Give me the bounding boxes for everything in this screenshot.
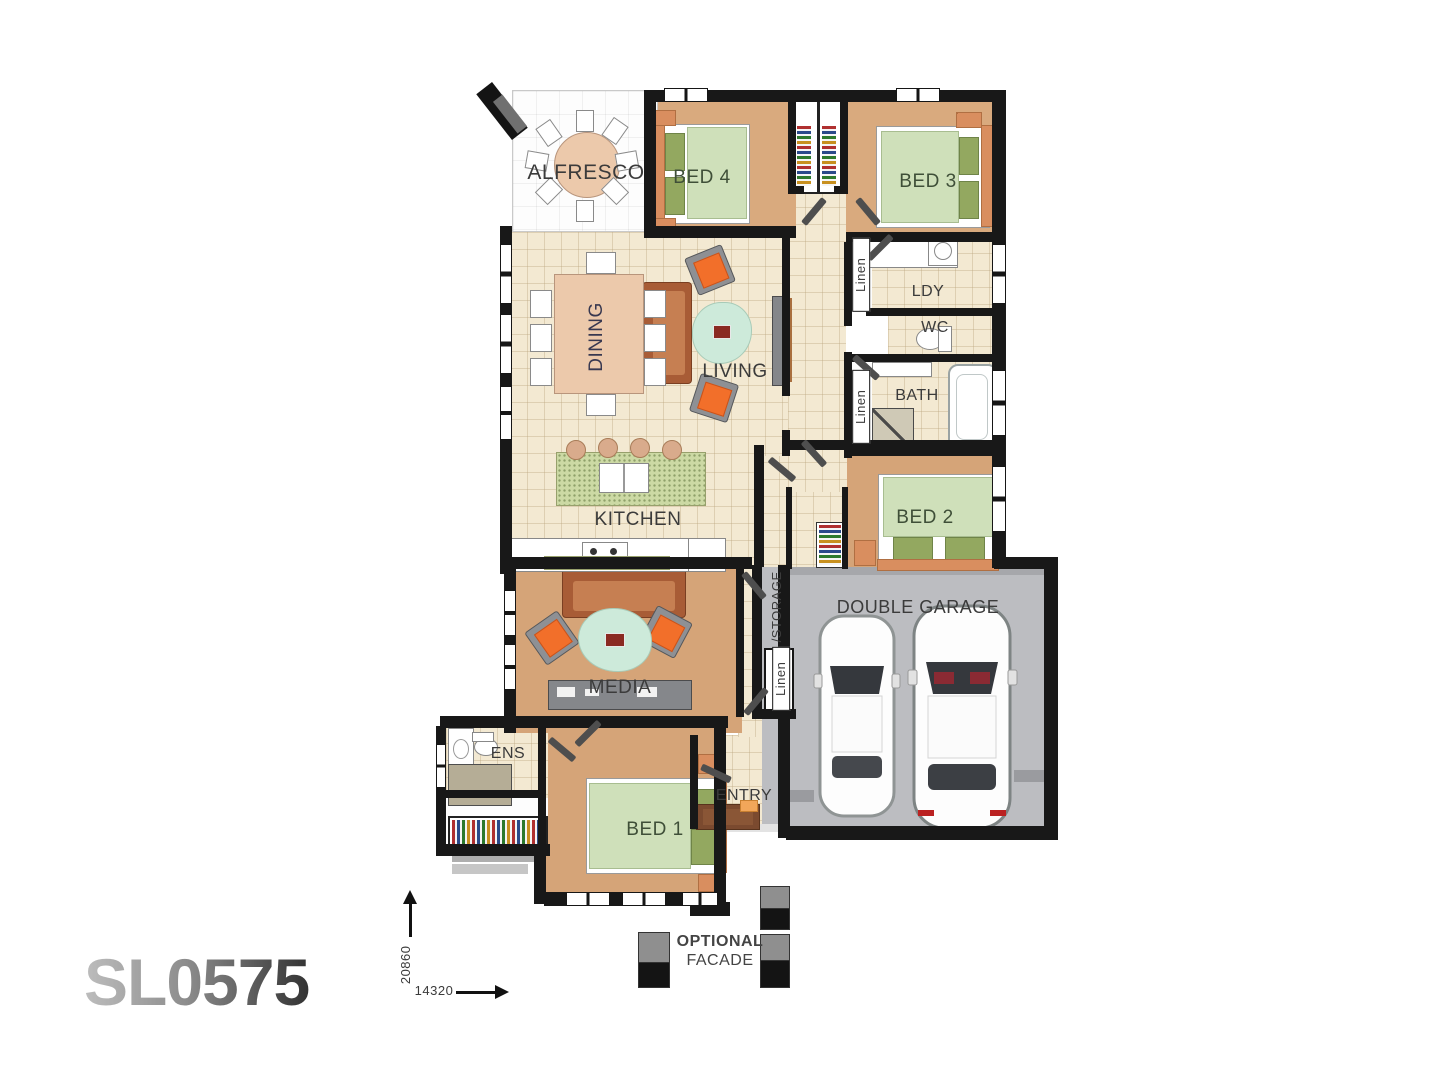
- robe-bed2-icon-part: [819, 525, 841, 565]
- robe-bed2-icon: [816, 522, 844, 568]
- ens-vanity-icon-part: [453, 739, 469, 759]
- dining-chair-2: [530, 358, 552, 386]
- wc-label: WC: [910, 320, 960, 337]
- wall-segment-36: [690, 735, 698, 829]
- width-dimension: 14320: [408, 984, 460, 998]
- dining-chair-bottom: [586, 394, 616, 416]
- dining-chair-1: [530, 324, 552, 352]
- width-arrow-line: [456, 991, 496, 994]
- window-9: [500, 314, 512, 374]
- dining-chair-4: [644, 324, 666, 352]
- dining-chair-top: [586, 252, 616, 274]
- window-2: [566, 892, 610, 906]
- living-armchair-2-part: [697, 382, 732, 417]
- bed2-side-table: [854, 540, 876, 566]
- wall-segment-25: [510, 557, 752, 569]
- wall-segment-4: [786, 826, 1058, 840]
- kitchen-stool-2: [630, 438, 650, 458]
- wall-segment-17: [844, 352, 852, 458]
- kitchen-stool-0: [566, 440, 586, 460]
- bed3-side-table-1b: [956, 112, 958, 114]
- kitchen-island-icon: [556, 452, 706, 506]
- depth-arrow-head: [403, 890, 417, 904]
- laundry-label: LDY: [898, 284, 958, 301]
- wall-segment-3: [1044, 565, 1058, 839]
- window-3: [622, 892, 666, 906]
- bed2-icon-part: [877, 559, 999, 571]
- linen-mid-label: Linen: [852, 370, 870, 444]
- window-7: [992, 466, 1006, 532]
- facade-post-2-base: [760, 908, 790, 930]
- alfresco-chair-0: [576, 110, 594, 132]
- kitchen-stool-1: [598, 438, 618, 458]
- garage-cars: [812, 604, 1062, 836]
- car-1: [814, 616, 900, 816]
- robe-bed4-icon: [793, 100, 819, 194]
- media-rug-icon: [578, 608, 652, 672]
- wall-segment-29: [714, 728, 726, 906]
- wall-segment-22: [754, 445, 764, 567]
- alfresco-label: ALFRESCO: [506, 162, 666, 184]
- wall-segment-32: [436, 844, 550, 856]
- wall-segment-34: [538, 728, 546, 846]
- garage-label: DOUBLE GARAGE: [790, 598, 1046, 617]
- linen-top-label: Linen: [852, 238, 870, 312]
- window-8: [500, 244, 512, 304]
- bath-label: BATH: [882, 388, 952, 405]
- bath-vanity-icon: [872, 362, 932, 377]
- bed3-label: BED 3: [876, 172, 980, 192]
- depth-arrow-line: [409, 903, 412, 937]
- robe-bed3-icon-part: [822, 126, 836, 186]
- wall-segment-24: [842, 487, 848, 569]
- bed1-label: BED 1: [600, 820, 710, 840]
- wall-segment-19: [846, 354, 996, 362]
- bed4-icon-part: [665, 133, 685, 171]
- window-5: [992, 244, 1006, 304]
- wall-segment-12: [840, 96, 848, 194]
- dining-chair-5: [644, 358, 666, 386]
- storage-label: /STORAGE: [770, 567, 784, 647]
- wall-segment-20: [846, 448, 1004, 456]
- ens-label: ENS: [478, 746, 538, 763]
- wir-clothes-icon-part: [452, 820, 544, 846]
- living-armchair-1-part: [693, 252, 729, 288]
- robe-bed4-icon-part: [797, 126, 811, 186]
- facade-note-line1: OPTIONAL: [660, 934, 780, 951]
- wall-segment-26: [736, 567, 744, 717]
- bed3-icon-part: [959, 137, 979, 175]
- kitchen-stool-3: [662, 440, 682, 460]
- wall-segment-28: [440, 716, 728, 728]
- storage-linen-label: Linen: [772, 647, 790, 711]
- living-rug-icon-part: [713, 325, 731, 339]
- floor-plan: ALFRESCO BED 4 BED 3 DINING LIVING Linen…: [0, 0, 1440, 1080]
- bed4-label: BED 4: [650, 168, 754, 188]
- wall-segment-23: [786, 487, 792, 569]
- kitchen-island-icon-part: [599, 463, 649, 493]
- dining-chair-0: [530, 290, 552, 318]
- media-rug-icon-part: [605, 633, 625, 647]
- car-2: [908, 606, 1017, 828]
- window-4: [682, 892, 718, 906]
- washer-icon-part: [934, 242, 952, 260]
- ens-cistern-icon: [472, 732, 494, 742]
- ens-vanity-icon: [448, 728, 474, 768]
- living-label: LIVING: [680, 362, 790, 382]
- entry-label: ENTRY: [700, 788, 788, 805]
- bed3-side-table-1: [956, 112, 982, 128]
- wall-segment-15: [782, 430, 790, 456]
- window-6: [992, 370, 1006, 436]
- window-10: [500, 386, 512, 440]
- dining-chair-3: [644, 290, 666, 318]
- bed2-icon-part: [945, 537, 985, 561]
- garage-corner-step-l: [788, 790, 814, 802]
- facade-note-line2: FACADE: [660, 953, 780, 970]
- bathtub-icon-part: [956, 374, 988, 440]
- media-armchair-2-part: [647, 614, 685, 652]
- wall-segment-9: [644, 226, 796, 238]
- bed2-label: BED 2: [870, 508, 980, 528]
- window-1: [896, 88, 940, 102]
- wall-segment-11: [788, 96, 796, 194]
- kitchen-label: KITCHEN: [578, 510, 698, 530]
- window-13: [436, 744, 446, 788]
- ens-shower-icon: [448, 764, 512, 806]
- wall-segment-16: [844, 242, 852, 326]
- wall-segment-18: [866, 308, 996, 316]
- alfresco-chair-7: [576, 200, 594, 222]
- bed2-icon-part: [893, 537, 933, 561]
- dining-label: DINING: [587, 292, 607, 382]
- wall-segment-35: [444, 790, 540, 798]
- window-12: [504, 644, 516, 690]
- window-0: [664, 88, 708, 102]
- width-arrow-head: [495, 985, 509, 999]
- cooktop-icon-part: [590, 548, 597, 555]
- plan-code: SL0575: [84, 944, 309, 1020]
- bathtub-icon: [948, 364, 998, 452]
- media-label: MEDIA: [560, 678, 680, 698]
- wir-step-2: [452, 864, 528, 874]
- window-11: [504, 590, 516, 636]
